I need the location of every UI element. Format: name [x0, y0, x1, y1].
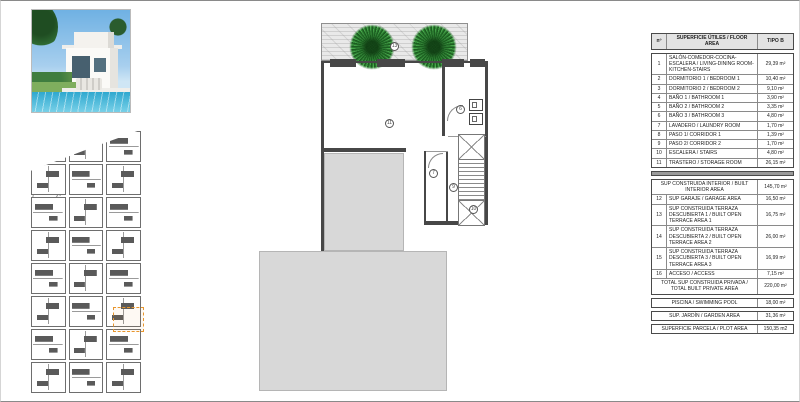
table-row: 5BAÑO 2 / BATHROOM 23,35 m² [652, 102, 793, 111]
site-unit [106, 230, 141, 261]
table-row: 6BAÑO 3 / BATHROOM 34,80 m² [652, 111, 793, 120]
terrace-furniture [76, 78, 102, 90]
table-row: 12SUP GARAJE / GARAGE AREA16,50 m² [652, 194, 793, 203]
table-row: 4BAÑO 1 / BATHROOM 13,90 m² [652, 93, 793, 102]
site-unit [69, 362, 104, 393]
header-type: TIPO B [757, 34, 793, 49]
site-unit [106, 164, 141, 195]
table-row: 9PASO 2/ CORRIDOR 21,70 m² [652, 139, 793, 148]
site-unit [31, 329, 66, 360]
site-unit [31, 230, 66, 261]
table-row-plot: SUPERFICIE PARCELA / PLOT AREA150,35 m2 [651, 324, 794, 334]
current-unit-highlight [113, 307, 144, 332]
site-unit [31, 296, 66, 327]
villa-render-photo [31, 9, 131, 113]
garden-area-lower [259, 251, 447, 391]
site-unit [31, 131, 66, 162]
header-desc: SUPERFICIE ÚTILES / FLOOR AREA [667, 34, 757, 49]
wall-room-bottom [321, 148, 406, 152]
swimming-pool-photo [32, 92, 131, 113]
table-row: 3DORMITORIO 2 / BEDROOM 29,10 m² [652, 84, 793, 93]
window-block [330, 59, 356, 67]
site-plan [29, 129, 143, 395]
area-table-header: nº SUPERFICIE ÚTILES / FLOOR AREA TIPO B [651, 33, 794, 50]
window-block [377, 59, 405, 67]
table-row: 11TRASTERO / STORAGE ROOM26,15 m² [652, 158, 793, 167]
site-unit [31, 164, 66, 195]
table-row: 10ESCALERA / STAIRS4,80 m² [652, 148, 793, 157]
stairs-break-upper [458, 134, 485, 160]
stairs-treads [458, 160, 485, 200]
table-row: 14SUP CONSTRUIDA TERRAZA DESCUBIERTA 2 /… [652, 225, 793, 247]
site-unit [31, 362, 66, 393]
table-row-pool: PISCINA / SWIMMING POOL18,00 m² [651, 298, 794, 308]
site-unit [69, 329, 104, 360]
area-table-summary: SUP CONSTRUIDA INTERIOR / BUILT INTERIOR… [651, 179, 794, 295]
table-row: 8PASO 1/ CORRIDOR 11,39 m² [652, 130, 793, 139]
room-label-terrace: 13 [390, 42, 399, 51]
door-arc-laundry [428, 153, 443, 168]
site-unit [106, 197, 141, 228]
table-row-garden: SUP. JARDÍN / GARDEN AREA31,36 m² [651, 311, 794, 321]
wall-right [485, 61, 488, 225]
terrace-area-upper [324, 153, 404, 251]
bathroom-fixture [469, 113, 483, 125]
villa-window-large [72, 56, 90, 78]
table-row: 15SUP CONSTRUIDA TERRAZA DESCUBIERTA 3 /… [652, 247, 793, 269]
table-row-total: TOTAL SUP CONSTRUIDA PRIVADA / TOTAL BUI… [652, 278, 793, 294]
room-label-bathroom: 6 [456, 105, 465, 114]
site-unit [106, 263, 141, 294]
site-unit [31, 197, 66, 228]
wall-laundry-top [426, 151, 448, 152]
site-unit [31, 263, 66, 294]
site-unit [106, 329, 141, 360]
site-unit [69, 230, 104, 261]
palm-tree-left [31, 9, 58, 50]
room-label-stairs: 10 [469, 205, 478, 214]
table-row: 1SALÓN-COMEDOR-COCINA-ESCALERA / LIVING-… [652, 54, 793, 75]
room-label-storage: 11 [385, 119, 394, 128]
wall-laundry-left [424, 151, 426, 223]
site-unit [69, 131, 104, 162]
site-unit [106, 362, 141, 393]
area-table-body: 1SALÓN-COMEDOR-COCINA-ESCALERA / LIVING-… [651, 53, 794, 168]
site-unit [106, 131, 141, 162]
bathroom-fixture [469, 99, 483, 111]
site-unit [69, 296, 104, 327]
table-row: 2DORMITORIO 1 / BEDROOM 110,40 m² [652, 74, 793, 83]
wall-laundry-right [446, 151, 448, 223]
room-label-laundry: 7 [429, 169, 438, 178]
table-row-interior: SUP CONSTRUIDA INTERIOR / BUILT INTERIOR… [652, 180, 793, 195]
area-table: nº SUPERFICIE ÚTILES / FLOOR AREA TIPO B… [651, 33, 794, 337]
table-row: 16ACCESO / ACCESS7,15 m² [652, 269, 793, 278]
site-plan-units [29, 129, 143, 395]
table-separator-band [651, 171, 794, 176]
header-num: nº [652, 34, 667, 49]
wall-interior [442, 61, 445, 136]
site-unit [69, 164, 104, 195]
room-label-corridor: 9 [449, 183, 458, 192]
villa-window-small [94, 58, 106, 72]
site-unit [69, 263, 104, 294]
window-block [470, 59, 485, 67]
window-block [442, 59, 464, 67]
table-row: 13SUP CONSTRUIDA TERRAZA DESCUBIERTA 1 /… [652, 204, 793, 226]
table-row: 7LAVADERO / LAUNDRY ROOM1,70 m² [652, 121, 793, 130]
drawing-sheet: 13 11 6 7 9 10 nº SUPERFICIE ÚTILES / FL… [0, 0, 800, 402]
site-unit [69, 197, 104, 228]
